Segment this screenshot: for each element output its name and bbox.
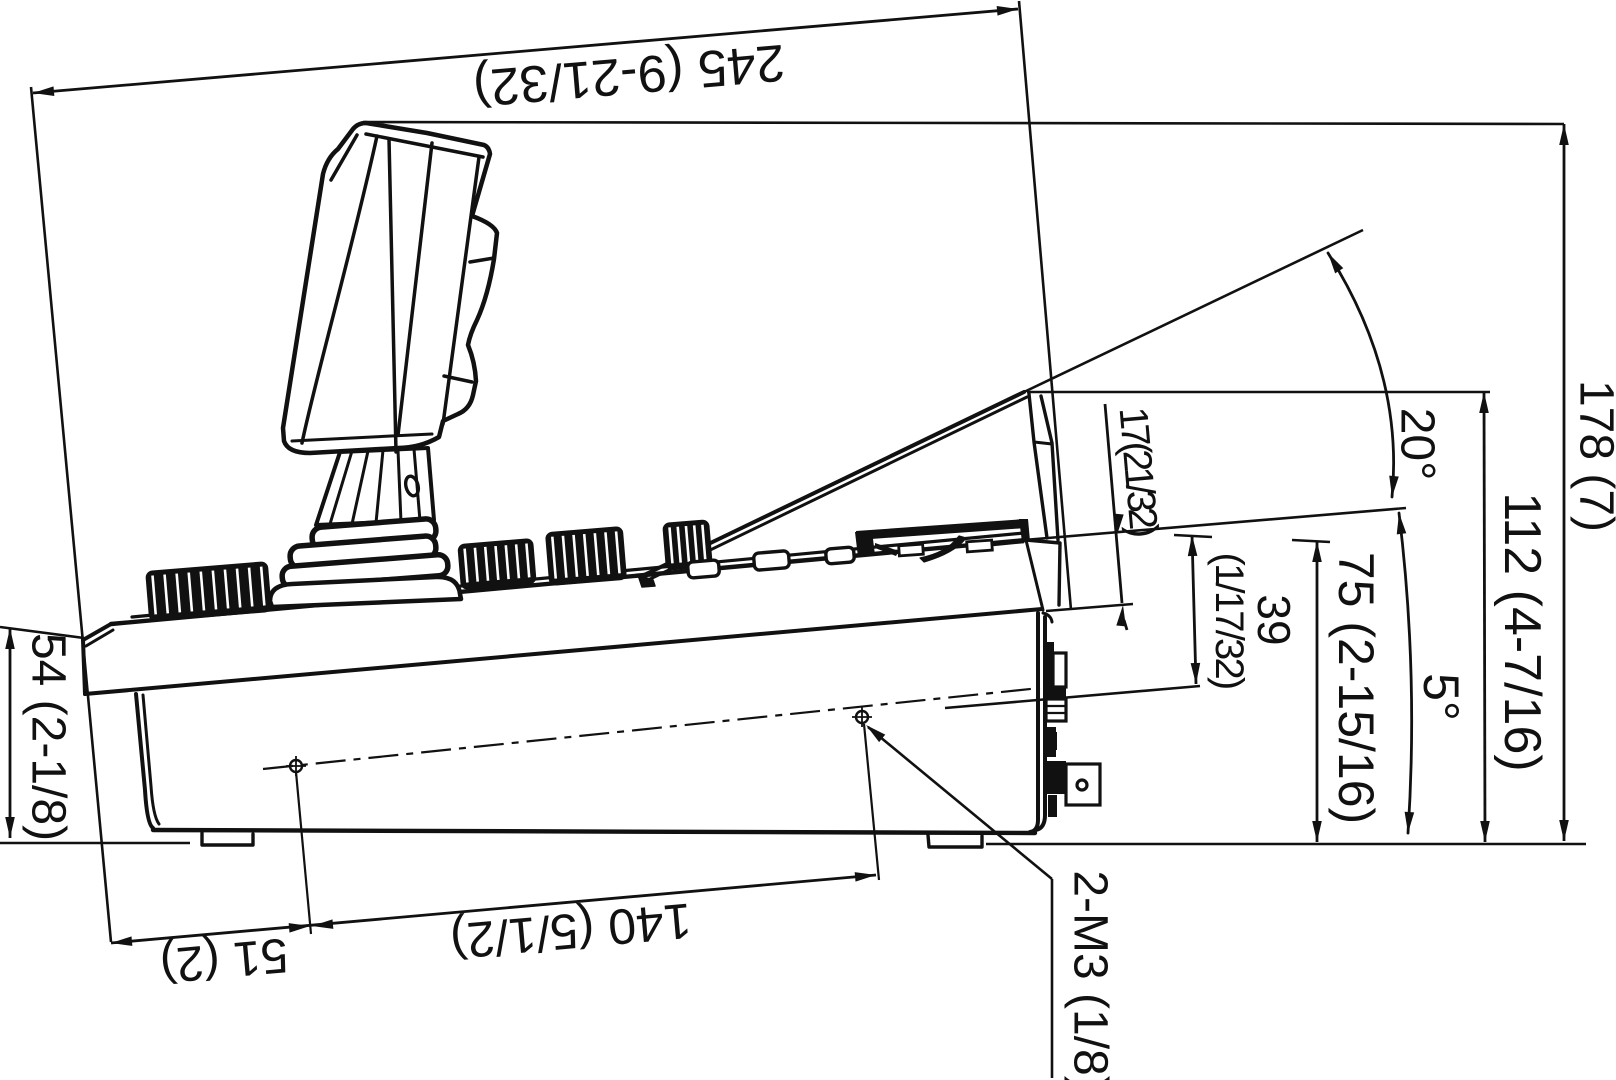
svg-text:(1/17/32): (1/17/32) — [1207, 553, 1251, 688]
svg-text:140 (5/1/2): 140 (5/1/2) — [448, 892, 694, 969]
svg-text:178 (7): 178 (7) — [1570, 380, 1616, 532]
svg-text:20°: 20° — [1391, 408, 1444, 481]
svg-text:245 (9-21/32): 245 (9-21/32) — [471, 33, 787, 117]
svg-text:51 (2): 51 (2) — [158, 927, 290, 992]
svg-text:2-M3 (1/8): 2-M3 (1/8) — [1064, 870, 1117, 1080]
svg-text:75 (2-15/16): 75 (2-15/16) — [1328, 552, 1384, 824]
svg-text:5°: 5° — [1413, 673, 1469, 721]
svg-text:112 (4-7/16): 112 (4-7/16) — [1493, 492, 1551, 771]
svg-text:39: 39 — [1248, 594, 1300, 645]
svg-text:54 (2-1/8): 54 (2-1/8) — [22, 633, 75, 841]
